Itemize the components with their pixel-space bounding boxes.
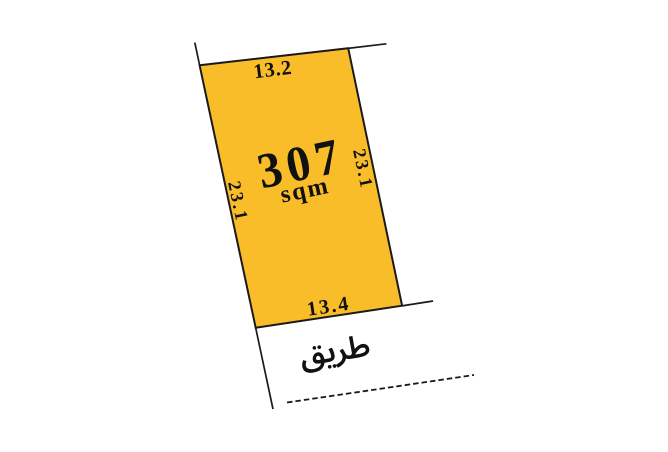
svg-text:13.2: 13.2: [252, 57, 293, 84]
